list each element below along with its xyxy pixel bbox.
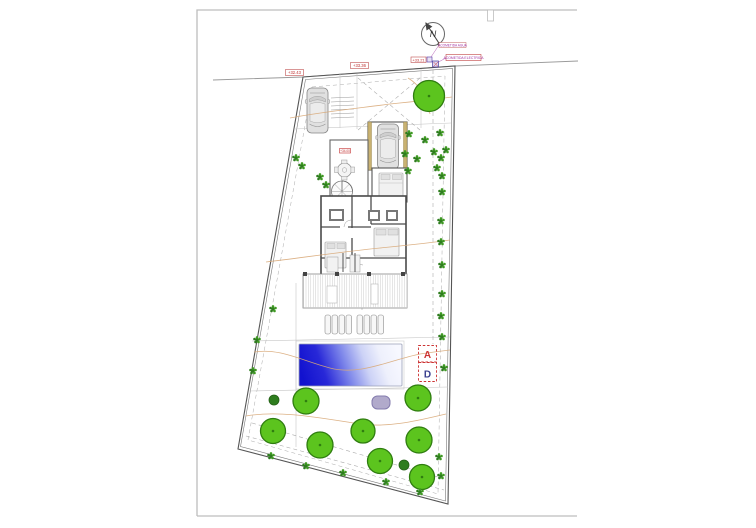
utility-labels: ACOMETIDA AGUA ACOMETIDA ELECTRICA [431, 43, 484, 63]
car-street [305, 88, 330, 133]
north-label: N [430, 29, 437, 39]
tree [293, 388, 319, 414]
bed [379, 173, 403, 199]
electric-connection-label: ACOMETIDA ELECTRICA [444, 56, 485, 60]
house-elevation-label: +34.00 [340, 149, 350, 153]
section-letter-d: D [424, 370, 431, 381]
section-letter-a: A [424, 350, 431, 361]
elevation-label: +33.21 [412, 57, 425, 62]
tree [351, 419, 375, 443]
elevation-label: +32.43 [288, 70, 302, 75]
sun-lounger [346, 315, 352, 334]
pool-area [296, 341, 404, 389]
outdoor-furniture [327, 257, 338, 272]
tree [410, 465, 435, 490]
sun-lounger [378, 315, 384, 334]
small-tree [399, 460, 409, 470]
water-connection-label: ACOMETIDA AGUA [438, 43, 467, 47]
utility-connections [427, 57, 439, 67]
elevation-label: +33.36 [353, 63, 367, 68]
site-plan-canvas: +34.00 [0, 0, 756, 528]
spa [372, 396, 390, 409]
car-garage [376, 124, 401, 169]
small-tree [269, 395, 279, 405]
water-meter-symbol [427, 57, 432, 62]
deck-furniture [327, 286, 337, 303]
sun-lounger [325, 315, 331, 334]
bed [374, 228, 399, 256]
swimming-pool [299, 344, 402, 386]
sun-lounger [357, 315, 363, 334]
sun-lounger [364, 315, 370, 334]
sun-lounger [339, 315, 345, 334]
tree [261, 419, 286, 444]
sun-lounger [332, 315, 338, 334]
frame-tab [488, 10, 494, 21]
tree [368, 449, 393, 474]
tree [414, 81, 445, 112]
deck-furniture [371, 284, 378, 304]
site-plan-svg: +34.00 [0, 0, 756, 528]
sun-lounger [371, 315, 377, 334]
tree [405, 385, 431, 411]
tree [406, 427, 432, 453]
tree [307, 432, 333, 458]
